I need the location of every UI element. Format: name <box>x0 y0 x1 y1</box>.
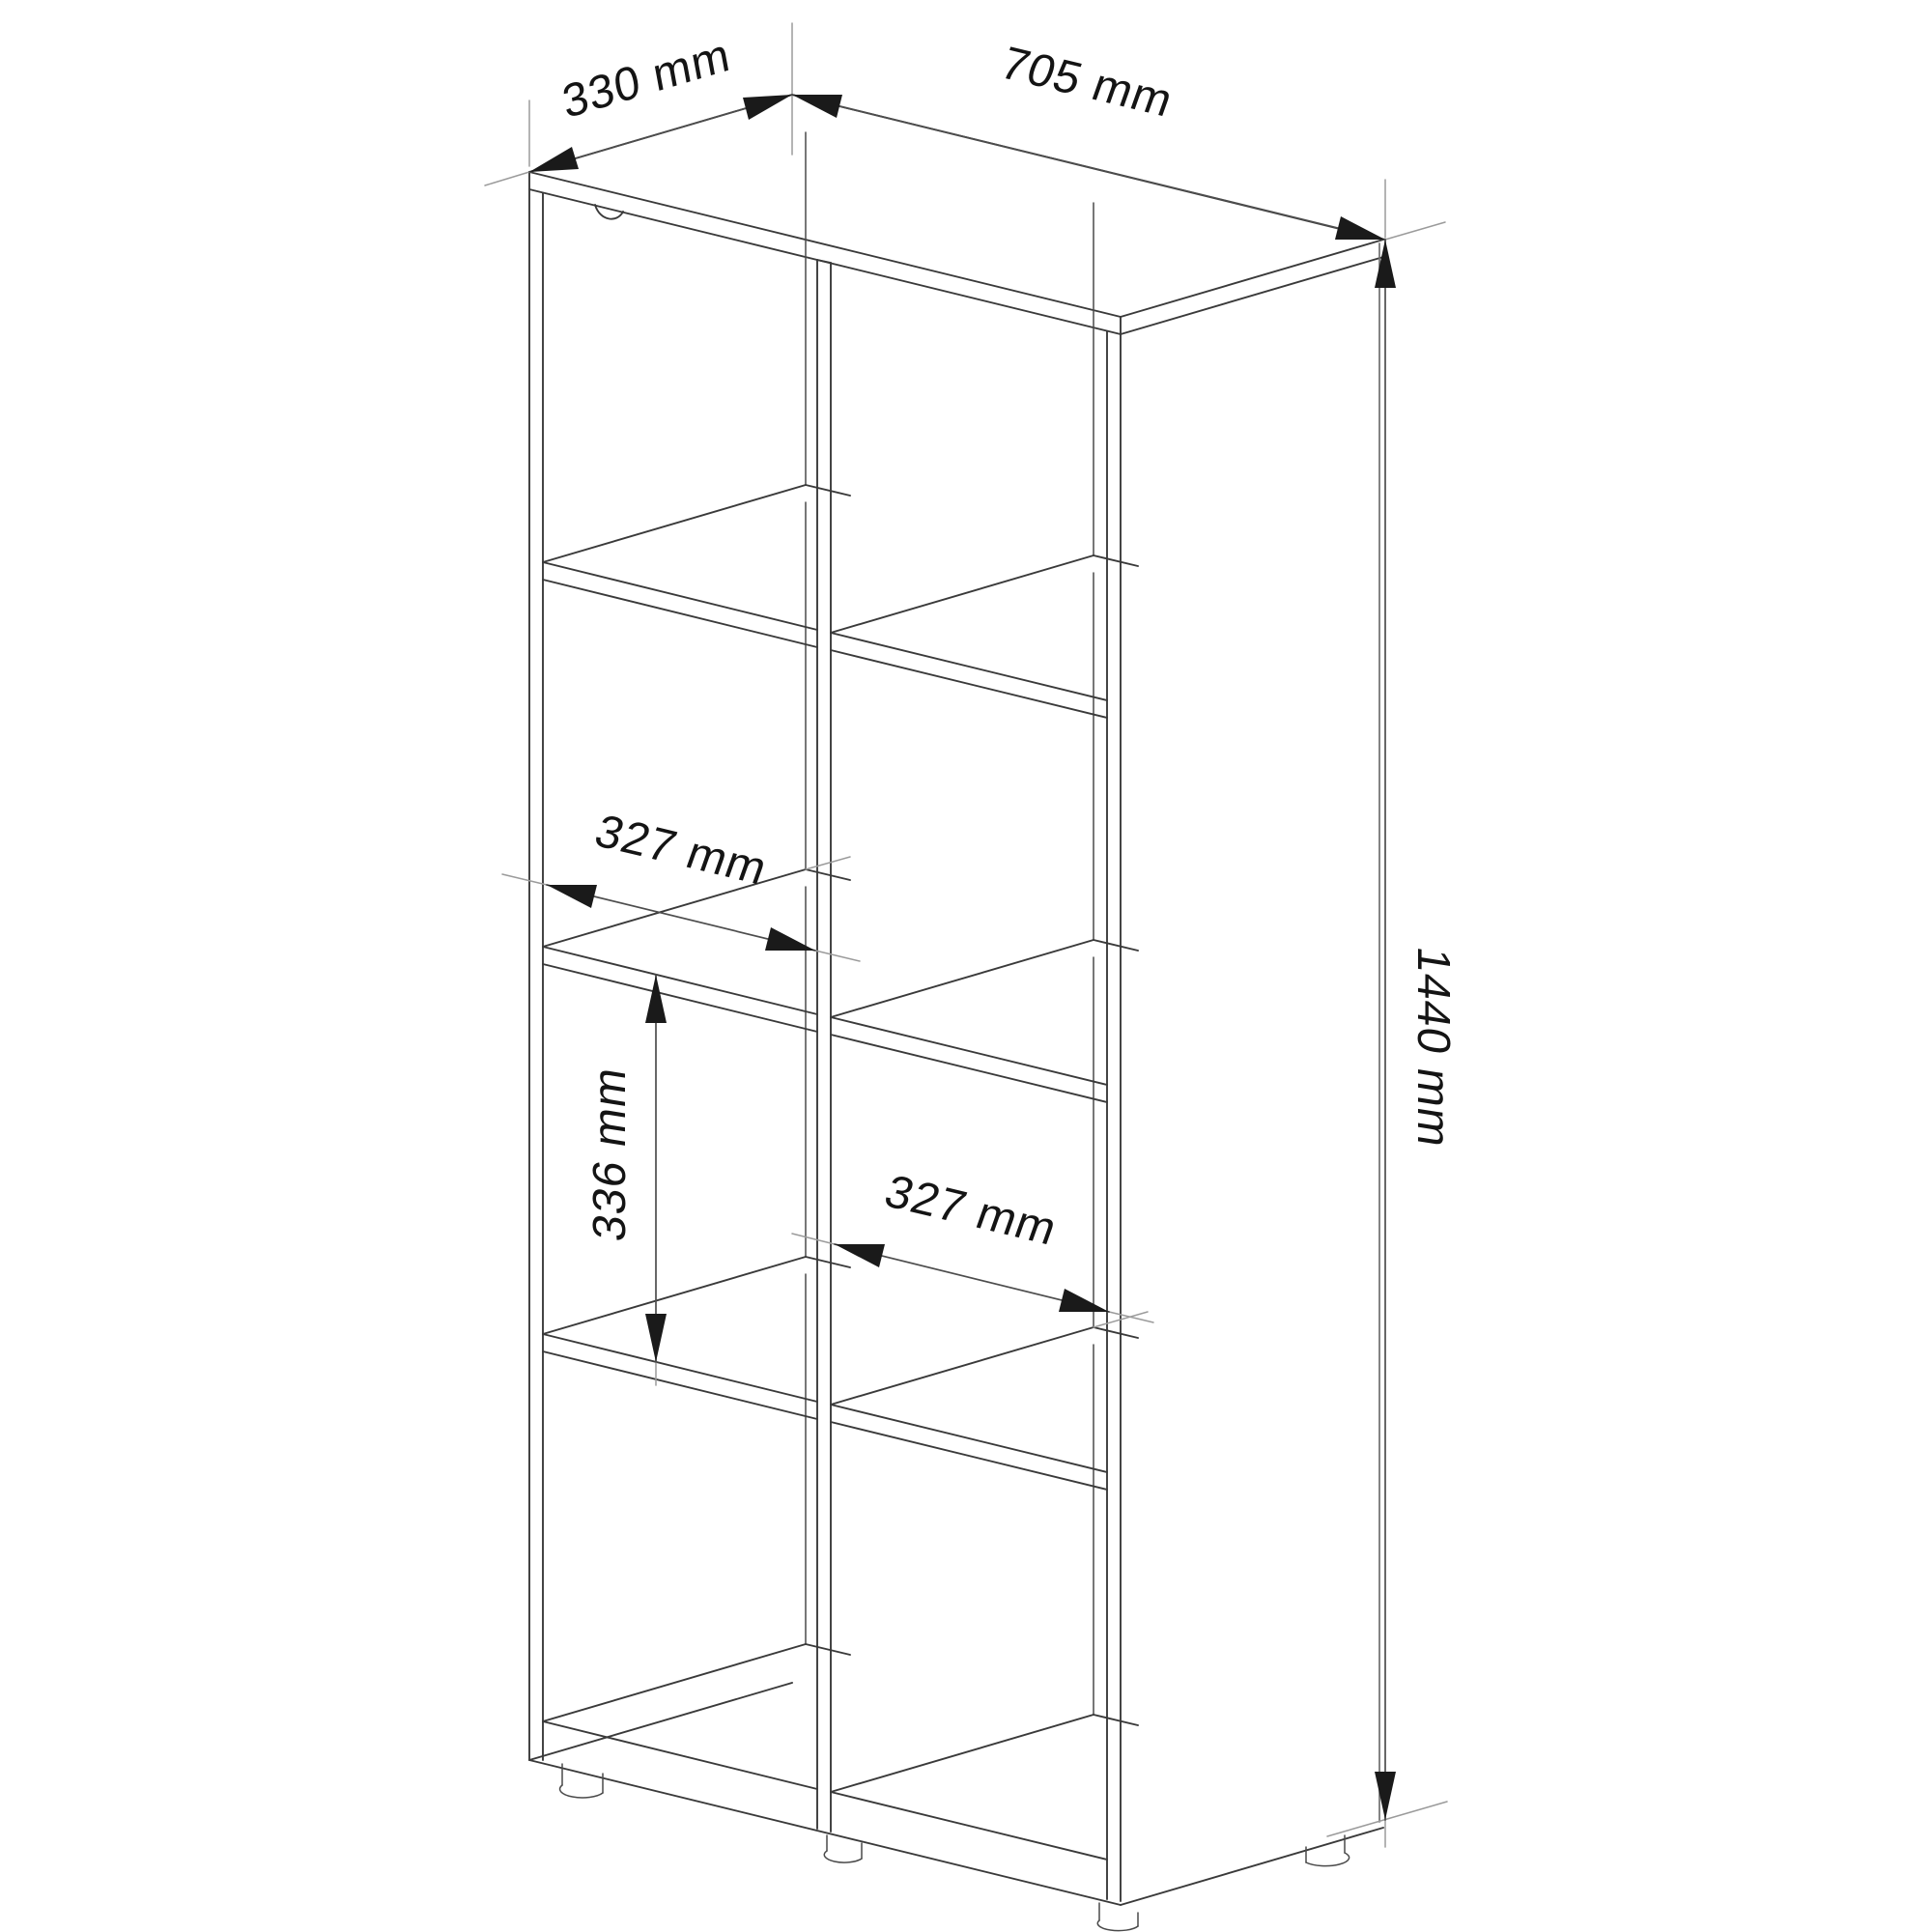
arrowhead <box>765 927 815 951</box>
dimension-label-width: 705 mm <box>994 37 1179 127</box>
arrowhead <box>1375 1772 1396 1820</box>
arrowhead <box>529 147 579 172</box>
arrowhead <box>645 975 667 1023</box>
arrowhead <box>743 95 792 120</box>
dimension-label-inner-width-right: 327 mm <box>878 1165 1064 1255</box>
top-panel <box>529 95 1383 334</box>
dimension-width-705: 705 mm <box>792 37 1445 240</box>
interior-back-edges <box>806 132 1094 1715</box>
right-side-panel <box>1107 243 1379 1901</box>
drawing-canvas: 330 mm 705 mm 1440 mm 327 mm 336 mm <box>0 0 1932 1932</box>
dimension-label-inner-height: 336 mm <box>583 1064 636 1245</box>
dimension-label-inner-width-left: 327 mm <box>588 805 774 895</box>
dimension-height-1440: 1440 mm <box>1327 240 1460 1847</box>
arrowhead <box>835 1244 885 1267</box>
bookshelf-dimension-diagram: 330 mm 705 mm 1440 mm 327 mm 336 mm <box>0 0 1932 1932</box>
dimension-label-depth: 330 mm <box>558 28 734 128</box>
dimension-inner-width-right-327: 327 mm <box>792 1165 1153 1327</box>
feet <box>560 1764 1350 1931</box>
arrowhead <box>792 95 842 118</box>
base-bottom <box>529 1683 1383 1905</box>
dimension-depth-330: 330 mm <box>485 23 792 185</box>
arrowhead <box>547 885 597 908</box>
foot-front-right <box>1097 1903 1138 1931</box>
dimension-inner-height-336: 336 mm <box>583 975 667 1385</box>
arrowhead <box>1375 240 1396 288</box>
dimension-label-height: 1440 mm <box>1407 944 1460 1152</box>
arrowhead <box>1059 1289 1109 1312</box>
arrowhead <box>645 1314 667 1362</box>
center-divider <box>817 260 831 1832</box>
arrowhead <box>1335 216 1385 240</box>
left-side-panel <box>529 172 543 1760</box>
